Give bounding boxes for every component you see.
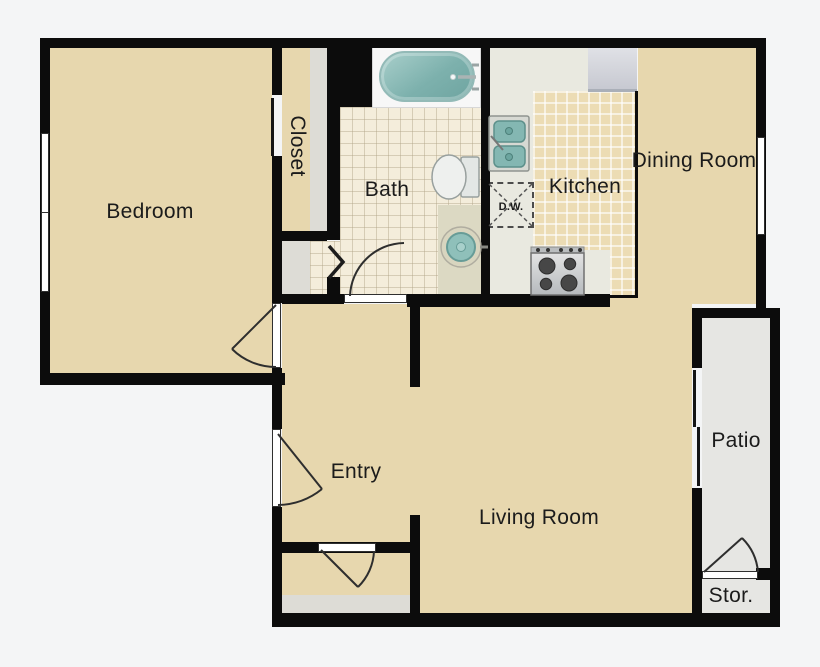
front-door-threshold xyxy=(272,429,281,507)
wall xyxy=(272,156,282,303)
wall xyxy=(481,38,490,294)
wall xyxy=(40,38,766,48)
living-floor xyxy=(282,304,692,613)
wall xyxy=(410,515,420,613)
wall xyxy=(40,373,285,385)
wall xyxy=(756,568,770,580)
wall xyxy=(272,368,282,385)
living-room-label: Living Room xyxy=(479,506,599,530)
storage-label: Stor. xyxy=(709,584,754,608)
entry-closet-floor-strip xyxy=(282,595,410,613)
door-threshold xyxy=(702,571,758,579)
wall xyxy=(407,294,610,307)
kitchen-dining-divider xyxy=(635,91,638,297)
bedroom-label: Bedroom xyxy=(106,200,193,224)
wall xyxy=(410,304,420,387)
wall xyxy=(282,231,327,241)
kitchen-counter-right xyxy=(583,250,610,295)
wall xyxy=(770,308,780,627)
wall xyxy=(692,308,702,368)
window xyxy=(41,133,49,213)
hall-floor xyxy=(282,241,310,294)
entry-label: Entry xyxy=(331,460,382,484)
wall xyxy=(272,48,282,95)
patio-sliding-door-panel xyxy=(697,427,700,486)
door-threshold xyxy=(272,303,281,368)
wall xyxy=(332,44,372,107)
window xyxy=(757,137,765,235)
kitchen-counter-left xyxy=(487,48,533,295)
closet-label: Closet xyxy=(285,115,309,176)
wall xyxy=(692,488,702,613)
wall xyxy=(692,308,780,318)
wall xyxy=(282,294,344,304)
wall xyxy=(272,385,282,429)
dining-floor xyxy=(638,48,756,304)
bath-vanity-counter xyxy=(438,205,484,294)
dining-room-label: Dining Room xyxy=(632,149,757,173)
kitchen-tile-edge xyxy=(610,295,638,298)
floor-plan-canvas: Bedroom Closet Bath Kitchen Dining Room … xyxy=(0,0,820,667)
window xyxy=(41,212,49,292)
wall xyxy=(272,507,282,625)
door-threshold xyxy=(344,294,407,303)
patio-sliding-door-panel xyxy=(693,370,696,427)
kitchen-label: Kitchen xyxy=(549,175,621,199)
bathtub-icon xyxy=(379,51,475,102)
bath-label: Bath xyxy=(365,178,409,202)
patio-label: Patio xyxy=(711,429,760,453)
door-threshold xyxy=(318,543,376,552)
closet-sliding-door xyxy=(271,98,274,156)
wall xyxy=(272,613,780,627)
closet-floor-strip xyxy=(310,48,327,231)
fridge-icon xyxy=(588,48,637,92)
dishwasher-label: D.W. xyxy=(499,201,524,213)
